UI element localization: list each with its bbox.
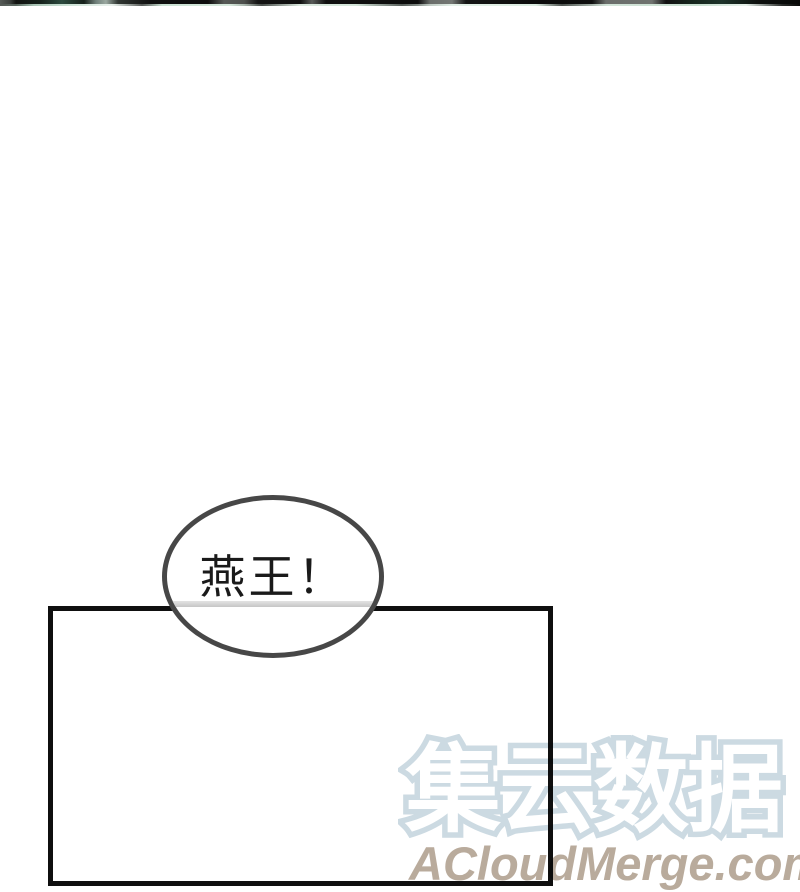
previous-panel-edge-highlight	[0, 4, 800, 6]
watermark-domain: ACloudMerge.com	[409, 840, 800, 887]
speech-bubble-text: 燕王！	[200, 554, 347, 600]
speech-bubble: 燕王！	[162, 495, 384, 658]
previous-panel-edge	[0, 0, 800, 6]
watermark-chinese: 集云数据	[405, 741, 781, 841]
comic-page: 燕王！ 集云数据 ACloudMerge.com	[0, 0, 800, 892]
watermark-chinese-fill: 集云数据	[405, 737, 781, 844]
